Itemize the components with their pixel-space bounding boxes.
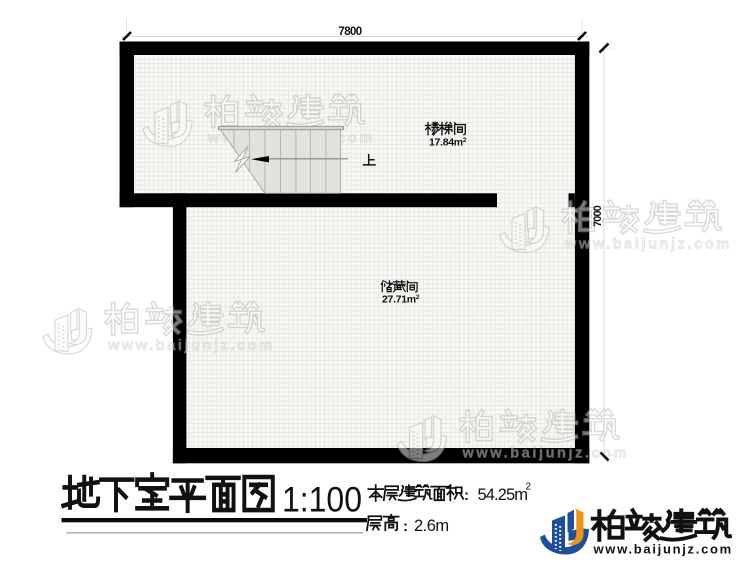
svg-text:2.6m: 2.6m [414, 517, 449, 535]
svg-text:www.baijunjz.com: www.baijunjz.com [593, 542, 733, 557]
svg-text:7000: 7000 [592, 205, 604, 227]
svg-text:27.71m2: 27.71m2 [382, 294, 420, 306]
svg-text:2: 2 [526, 482, 532, 493]
svg-text::: : [403, 518, 408, 535]
svg-text:7800: 7800 [338, 26, 361, 38]
svg-text:17.84m2: 17.84m2 [429, 137, 467, 149]
svg-text:1:100: 1:100 [282, 481, 362, 520]
svg-text::: : [464, 487, 469, 504]
svg-text:54.25m: 54.25m [478, 486, 528, 504]
